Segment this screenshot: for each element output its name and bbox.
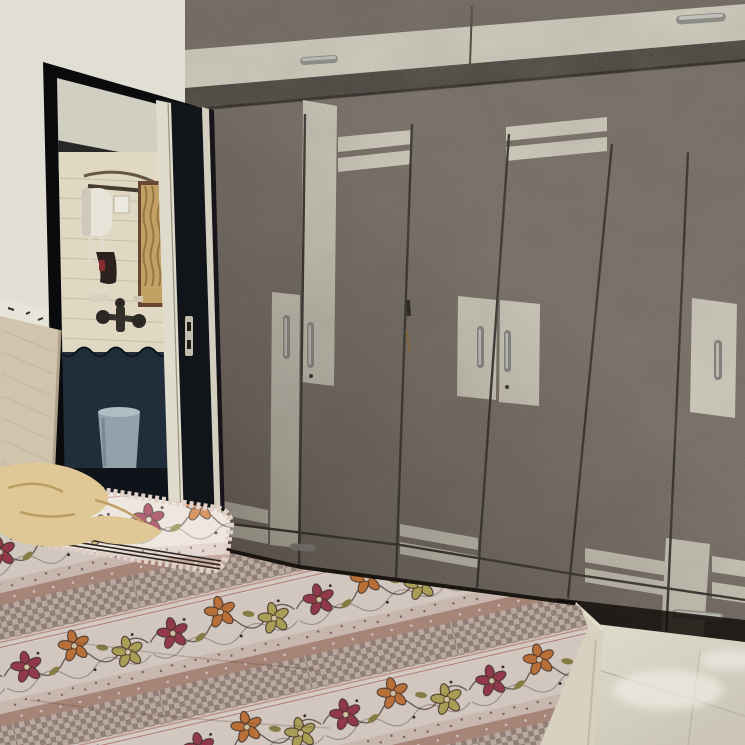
vignette [0, 0, 745, 745]
bedroom-photo: Cream wall Grey concrete-finish wardrobe… [0, 0, 745, 745]
scene-svg: Cream wall Grey concrete-finish wardrobe… [0, 0, 745, 745]
